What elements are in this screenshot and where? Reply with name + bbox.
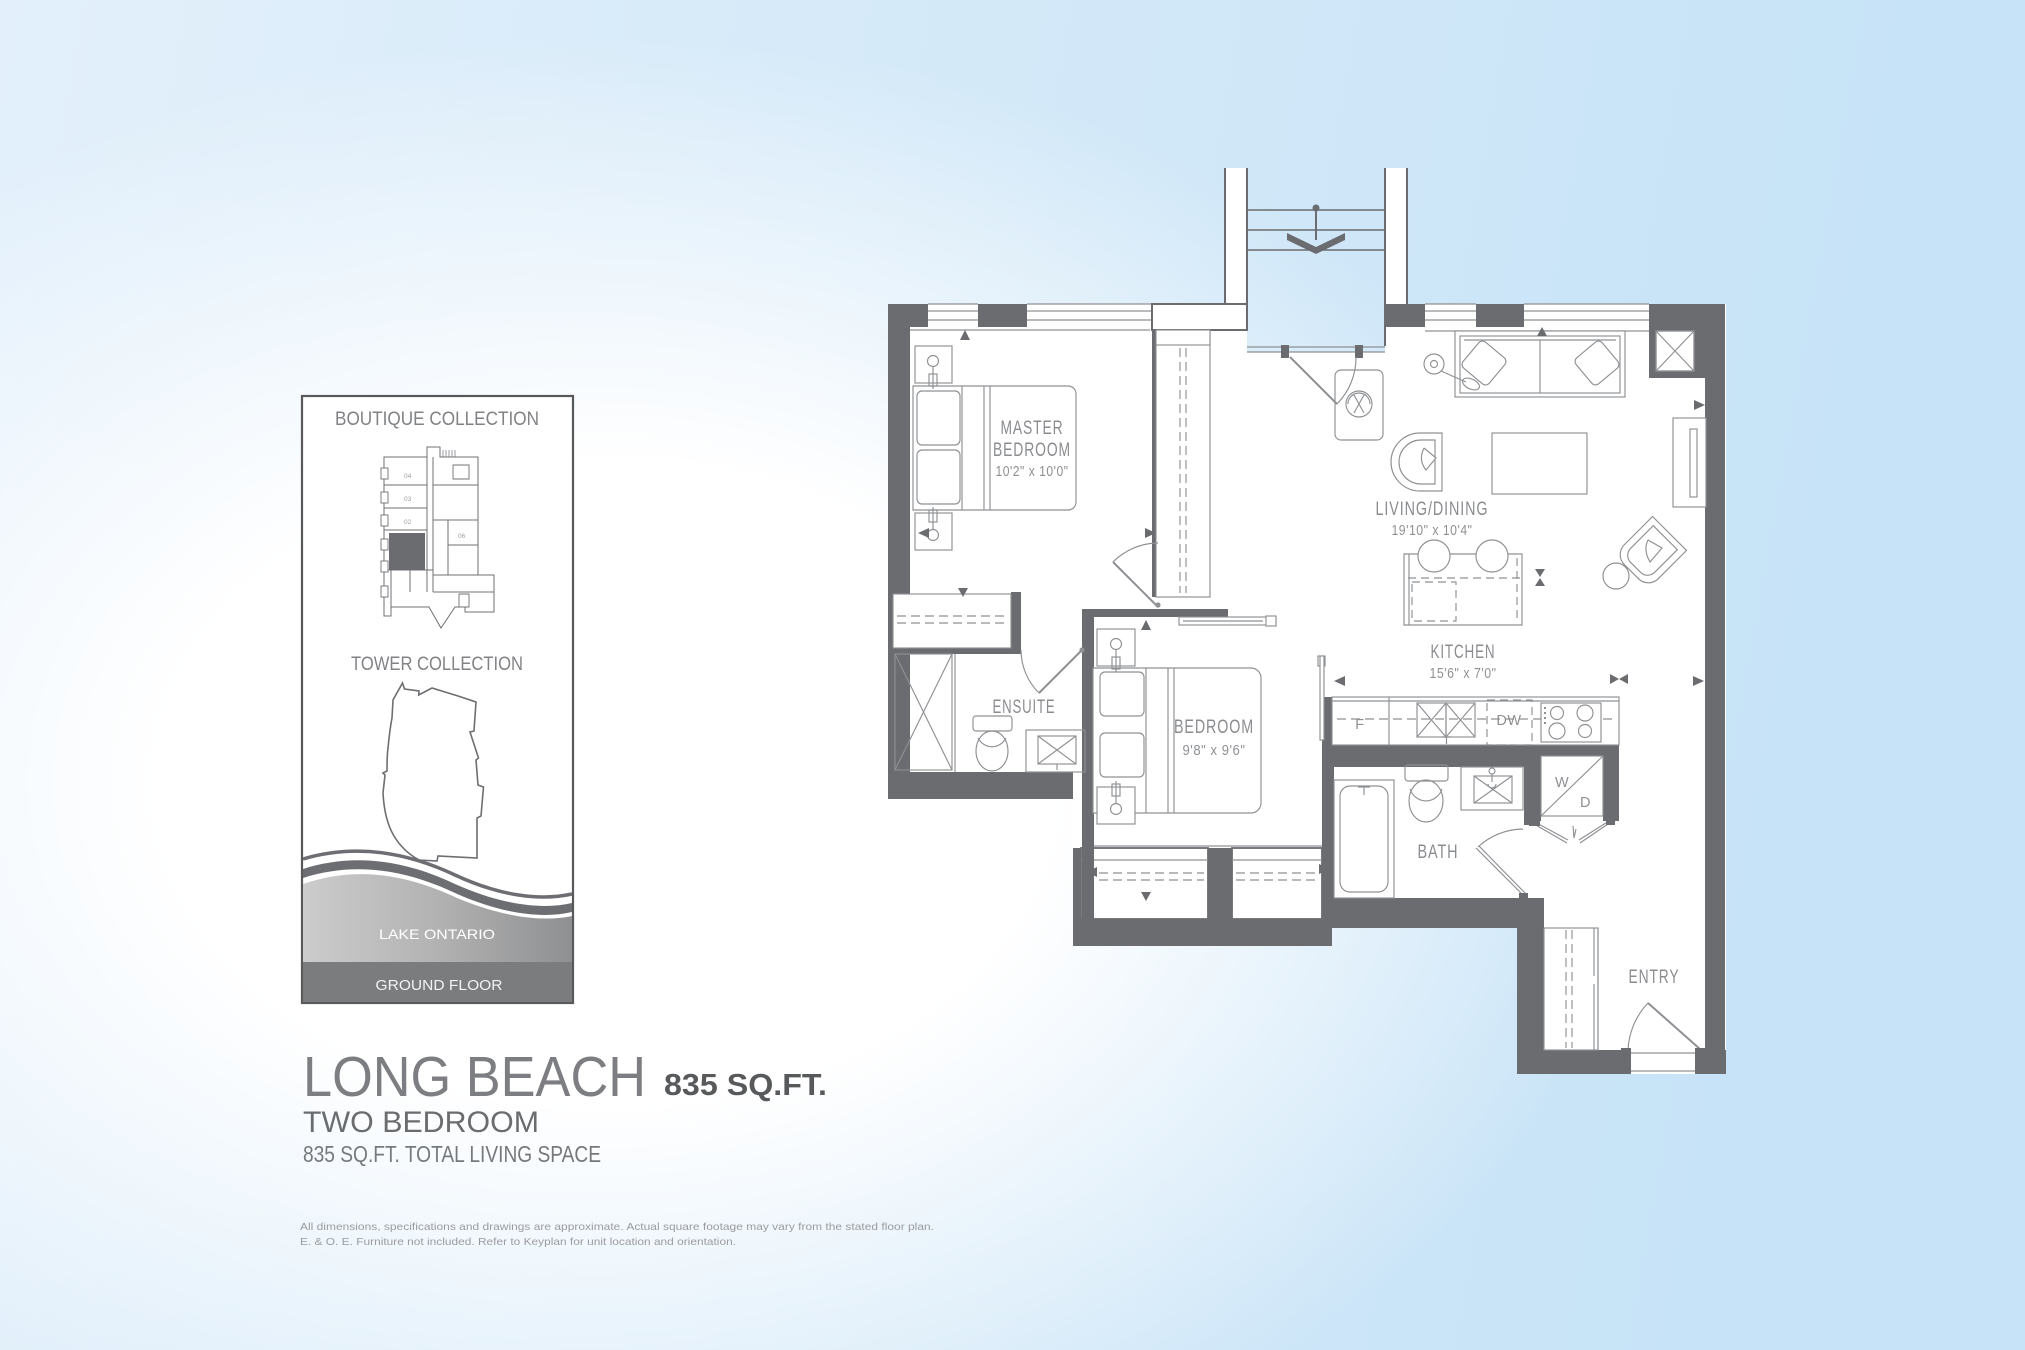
svg-text:MASTER: MASTER: [1001, 418, 1064, 439]
svg-text:835 SQ.FT. TOTAL LIVING SPACE: 835 SQ.FT. TOTAL LIVING SPACE: [303, 1141, 601, 1167]
svg-text:ENTRY: ENTRY: [1629, 967, 1680, 988]
svg-text:BEDROOM: BEDROOM: [993, 440, 1071, 461]
svg-text:ENSUITE: ENSUITE: [993, 697, 1056, 718]
svg-text:F: F: [1355, 717, 1364, 733]
svg-text:All dimensions, specifications: All dimensions, specifications and drawi…: [300, 1221, 934, 1233]
svg-text:835 SQ.FT.: 835 SQ.FT.: [664, 1067, 827, 1102]
svg-text:9'8" x 9'6": 9'8" x 9'6": [1183, 743, 1246, 759]
svg-text:02: 02: [404, 519, 412, 526]
svg-text:10'2" x 10'0": 10'2" x 10'0": [996, 464, 1069, 480]
svg-text:BATH: BATH: [1418, 842, 1459, 863]
svg-text:04: 04: [404, 473, 412, 480]
svg-text:W: W: [1555, 775, 1569, 791]
svg-text:KITCHEN: KITCHEN: [1431, 642, 1496, 663]
svg-text:BEDROOM: BEDROOM: [1174, 717, 1254, 738]
svg-text:03: 03: [404, 496, 412, 503]
svg-text:E. & O. E. Furniture not inclu: E. & O. E. Furniture not included. Refer…: [300, 1236, 736, 1248]
svg-text:06: 06: [458, 533, 466, 540]
svg-text:15'6" x 7'0": 15'6" x 7'0": [1430, 666, 1497, 682]
svg-text:LAKE ONTARIO: LAKE ONTARIO: [379, 926, 495, 942]
svg-text:BOUTIQUE COLLECTION: BOUTIQUE COLLECTION: [335, 409, 539, 430]
svg-text:TOWER COLLECTION: TOWER COLLECTION: [351, 654, 523, 675]
svg-text:GROUND FLOOR: GROUND FLOOR: [376, 978, 503, 994]
svg-text:D: D: [1580, 795, 1591, 811]
svg-text:LIVING/DINING: LIVING/DINING: [1376, 499, 1489, 520]
svg-text:TWO BEDROOM: TWO BEDROOM: [303, 1106, 539, 1139]
svg-text:19'10" x 10'4": 19'10" x 10'4": [1392, 523, 1473, 539]
svg-text:LONG BEACH: LONG BEACH: [303, 1045, 646, 1109]
svg-text:DW: DW: [1496, 713, 1521, 729]
